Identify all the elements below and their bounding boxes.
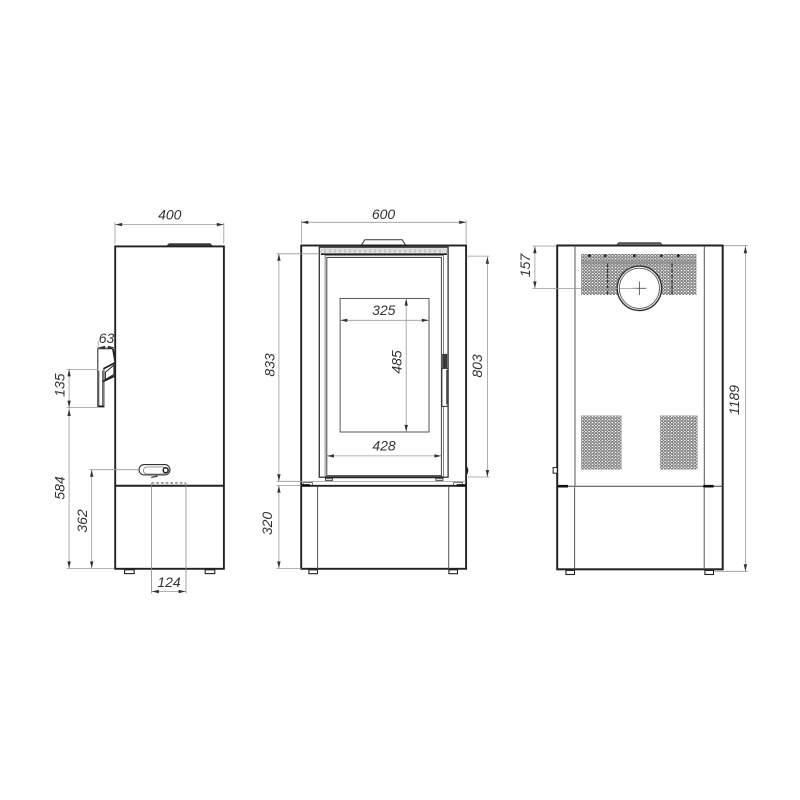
svg-text:157: 157 [517,253,533,278]
svg-text:600: 600 [372,206,396,222]
svg-text:63: 63 [99,330,115,346]
svg-text:833: 833 [261,353,277,377]
svg-text:124: 124 [157,574,181,590]
svg-text:485: 485 [389,350,405,374]
svg-text:320: 320 [259,512,275,536]
svg-text:325: 325 [372,302,396,318]
svg-text:584: 584 [52,476,68,500]
svg-text:135: 135 [52,373,68,397]
svg-text:400: 400 [158,207,182,223]
svg-text:428: 428 [372,438,396,454]
svg-text:362: 362 [74,509,90,533]
svg-text:1189: 1189 [726,385,742,415]
svg-text:803: 803 [469,354,485,378]
